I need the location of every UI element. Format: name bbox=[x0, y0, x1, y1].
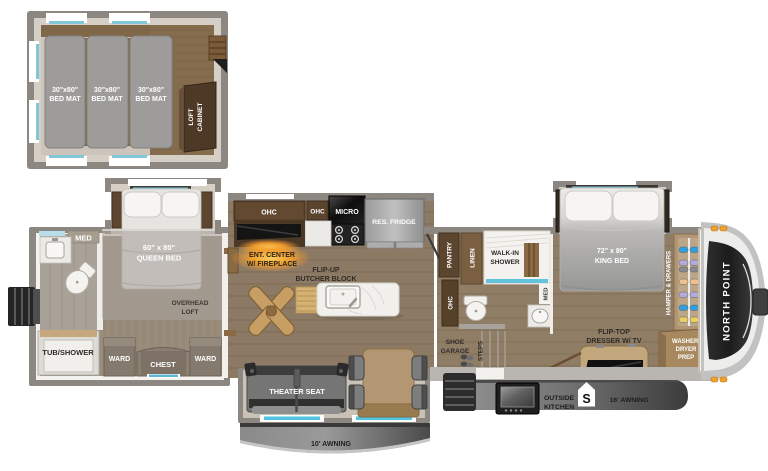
svg-text:FLIP-TOP: FLIP-TOP bbox=[598, 329, 630, 336]
svg-text:SHOE: SHOE bbox=[446, 339, 465, 346]
svg-text:WARD: WARD bbox=[195, 356, 216, 363]
svg-text:S: S bbox=[582, 392, 590, 406]
svg-text:THEATER SEAT: THEATER SEAT bbox=[269, 387, 325, 396]
svg-text:CHEST: CHEST bbox=[150, 360, 176, 369]
svg-text:MED: MED bbox=[544, 288, 550, 301]
svg-text:CABINET: CABINET bbox=[197, 103, 204, 132]
svg-text:KING BED: KING BED bbox=[595, 258, 629, 265]
svg-text:STEPS: STEPS bbox=[478, 341, 485, 361]
svg-text:BED MAT: BED MAT bbox=[91, 96, 123, 103]
svg-text:OHC: OHC bbox=[310, 209, 325, 216]
svg-text:BUTCHER BLOCK: BUTCHER BLOCK bbox=[295, 276, 356, 283]
svg-text:16' AWNING: 16' AWNING bbox=[610, 397, 649, 404]
svg-text:MICRO: MICRO bbox=[335, 209, 359, 216]
svg-text:OHC: OHC bbox=[449, 296, 455, 310]
svg-text:W/ FIREPLACE: W/ FIREPLACE bbox=[247, 261, 297, 268]
svg-text:KITCHEN: KITCHEN bbox=[544, 404, 574, 411]
svg-text:30"x80": 30"x80" bbox=[94, 87, 120, 94]
svg-text:TUB/SHOWER: TUB/SHOWER bbox=[42, 348, 94, 357]
svg-text:30"x80": 30"x80" bbox=[138, 87, 164, 94]
svg-text:10' AWNING: 10' AWNING bbox=[311, 441, 351, 448]
svg-text:LINEN: LINEN bbox=[470, 248, 477, 268]
svg-text:LOFT: LOFT bbox=[182, 309, 199, 316]
svg-text:DRESSER W/ TV: DRESSER W/ TV bbox=[586, 338, 642, 345]
svg-text:PANTRY: PANTRY bbox=[447, 241, 454, 268]
svg-text:WALK-IN: WALK-IN bbox=[491, 250, 519, 257]
svg-text:PREP: PREP bbox=[678, 355, 694, 361]
svg-text:OHC: OHC bbox=[261, 210, 277, 217]
svg-text:HAMPER & DRAWERS: HAMPER & DRAWERS bbox=[667, 251, 673, 315]
svg-text:WARD: WARD bbox=[109, 356, 130, 363]
svg-text:RES. FRIDGE: RES. FRIDGE bbox=[372, 219, 416, 226]
svg-text:OUTSIDE: OUTSIDE bbox=[544, 395, 575, 402]
svg-text:ENT. CENTER: ENT. CENTER bbox=[249, 252, 295, 259]
svg-text:GARAGE: GARAGE bbox=[441, 348, 470, 355]
svg-text:MED: MED bbox=[75, 234, 92, 243]
svg-text:WASHER/: WASHER/ bbox=[672, 339, 700, 345]
svg-text:BED MAT: BED MAT bbox=[135, 96, 167, 103]
svg-text:OVERHEAD: OVERHEAD bbox=[172, 300, 209, 307]
svg-text:FLIP-UP: FLIP-UP bbox=[312, 267, 340, 274]
svg-text:DRYER: DRYER bbox=[676, 347, 697, 353]
svg-text:LOFT: LOFT bbox=[188, 108, 195, 125]
svg-text:NORTH POINT: NORTH POINT bbox=[722, 261, 733, 341]
svg-text:BED MAT: BED MAT bbox=[49, 96, 81, 103]
svg-text:SHOWER: SHOWER bbox=[490, 259, 520, 266]
svg-text:30"x80": 30"x80" bbox=[52, 87, 78, 94]
svg-text:72" x 80": 72" x 80" bbox=[597, 248, 627, 255]
svg-text:60" x 80": 60" x 80" bbox=[143, 243, 176, 252]
svg-text:QUEEN BED: QUEEN BED bbox=[137, 254, 182, 263]
